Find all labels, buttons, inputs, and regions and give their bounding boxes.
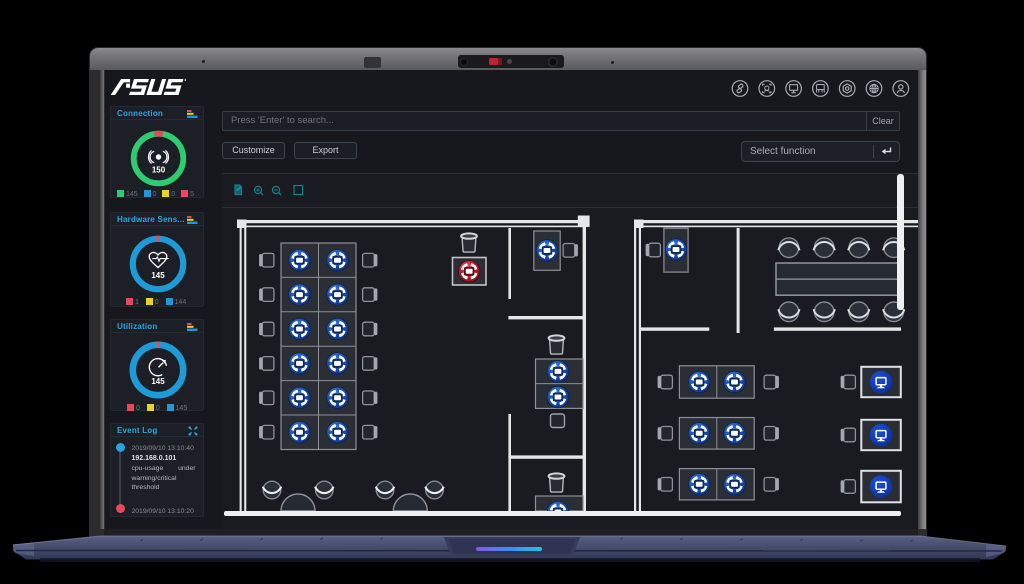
svg-text:145: 145 xyxy=(151,271,165,280)
svg-text:150: 150 xyxy=(151,166,165,175)
svg-text:145: 145 xyxy=(151,377,165,386)
